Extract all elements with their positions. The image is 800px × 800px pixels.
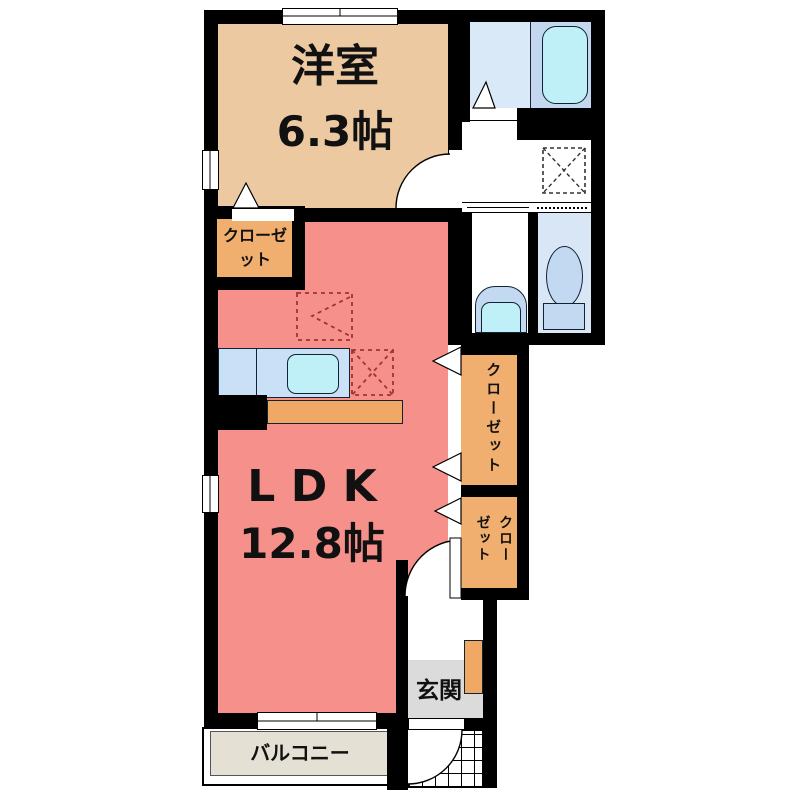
ldk-label: LDK — [212, 462, 412, 513]
dining-space-marker — [297, 293, 352, 340]
bathroom-folding-door — [473, 82, 495, 108]
hall-door-leaf — [450, 538, 461, 598]
westernroom-door-swing — [396, 154, 450, 208]
entrance-label: 玄関 — [408, 678, 470, 704]
closet-main-label: クローゼット — [221, 224, 289, 272]
closet-hall-lower-label: クローゼット — [474, 508, 516, 570]
refrigerator-space-marker — [352, 350, 393, 395]
balcony-label: バルコニー — [212, 742, 388, 765]
ldk-area: 12.8帖 — [212, 520, 412, 568]
closet-main-folding-door — [233, 183, 259, 208]
washing-machine-space-marker — [543, 148, 585, 193]
entrance-door-swing — [408, 730, 462, 784]
floor-plan: 洋室 6.3帖 LDK 12.8帖 クローゼット クローゼット クローゼット 玄… — [0, 0, 800, 800]
closet-lower-door-1 — [435, 498, 461, 524]
closet-hall-upper-label: クローゼット — [484, 357, 501, 481]
closet-upper-door-1 — [433, 347, 461, 375]
western-room-label: 洋室 — [222, 42, 448, 93]
western-room-area: 6.3帖 — [222, 108, 448, 156]
closet-upper-door-2 — [433, 453, 461, 481]
